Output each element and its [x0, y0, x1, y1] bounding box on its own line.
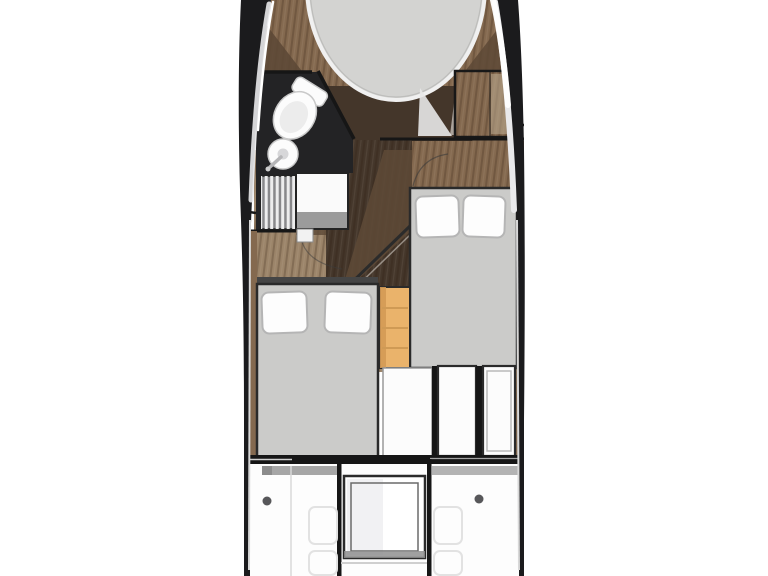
aft-panel-1 [383, 368, 432, 458]
engine-hatch-shade [347, 479, 383, 555]
cockpit-step-right [432, 466, 520, 475]
cockpit-step-left [262, 466, 338, 475]
floorplan-svg [0, 0, 768, 576]
hatch-frame-right [427, 459, 432, 576]
port-pillow-left [261, 291, 307, 334]
aft-panel-2 [438, 366, 476, 456]
step-tab [297, 229, 313, 242]
cockpit-step-left-cap [262, 466, 272, 475]
vanity-counter-edge [297, 212, 347, 228]
engine-hatch-hinge [344, 551, 425, 558]
port-pillow-right [324, 291, 371, 334]
aft-cabinets [383, 366, 515, 458]
starboard-cabin-floor-grain [412, 141, 515, 188]
faucet-handle [266, 167, 271, 172]
deck-drain-dot-right [475, 495, 484, 504]
starboard-pillow-left [415, 195, 459, 237]
cockpit [244, 455, 524, 576]
gunwale-line-port [249, 220, 250, 570]
starboard-pillow-right [462, 195, 505, 237]
aft-panel-3 [483, 366, 515, 456]
deck-drain-dot-left [263, 497, 272, 506]
shower-grate-slats [261, 176, 296, 229]
yacht-floorplan [0, 0, 768, 576]
